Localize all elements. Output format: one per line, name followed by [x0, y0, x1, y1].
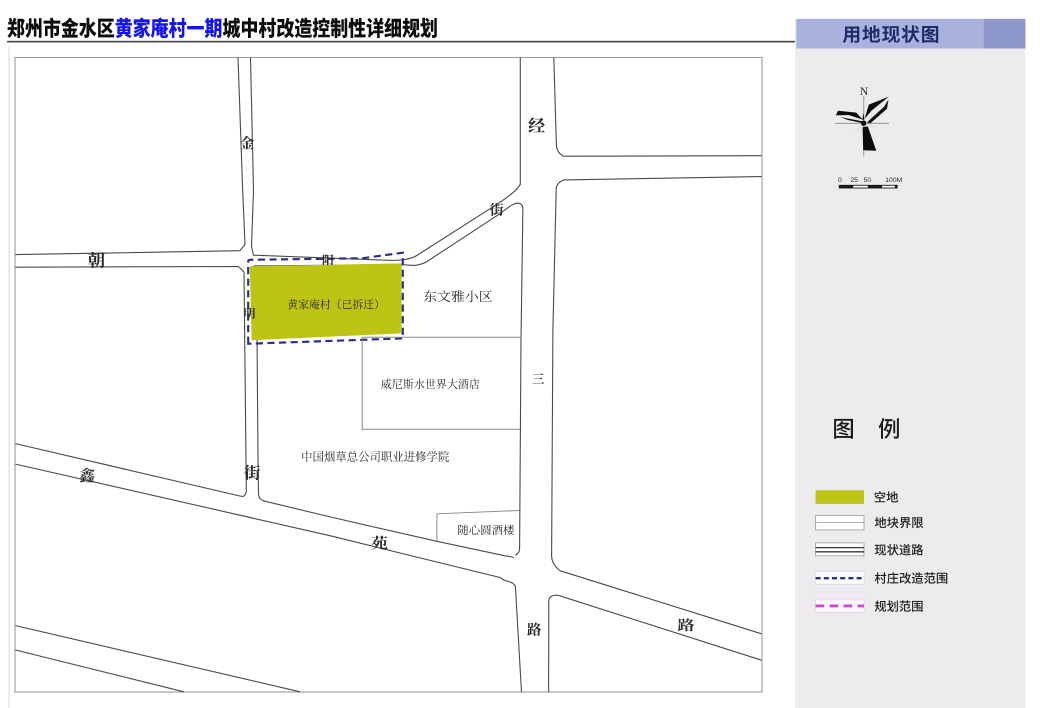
svg-text:N: N — [860, 86, 869, 98]
svg-text:25: 25 — [851, 177, 859, 184]
svg-text:50: 50 — [864, 177, 872, 184]
svg-text:100M: 100M — [885, 177, 902, 184]
svg-text:0: 0 — [838, 177, 842, 184]
